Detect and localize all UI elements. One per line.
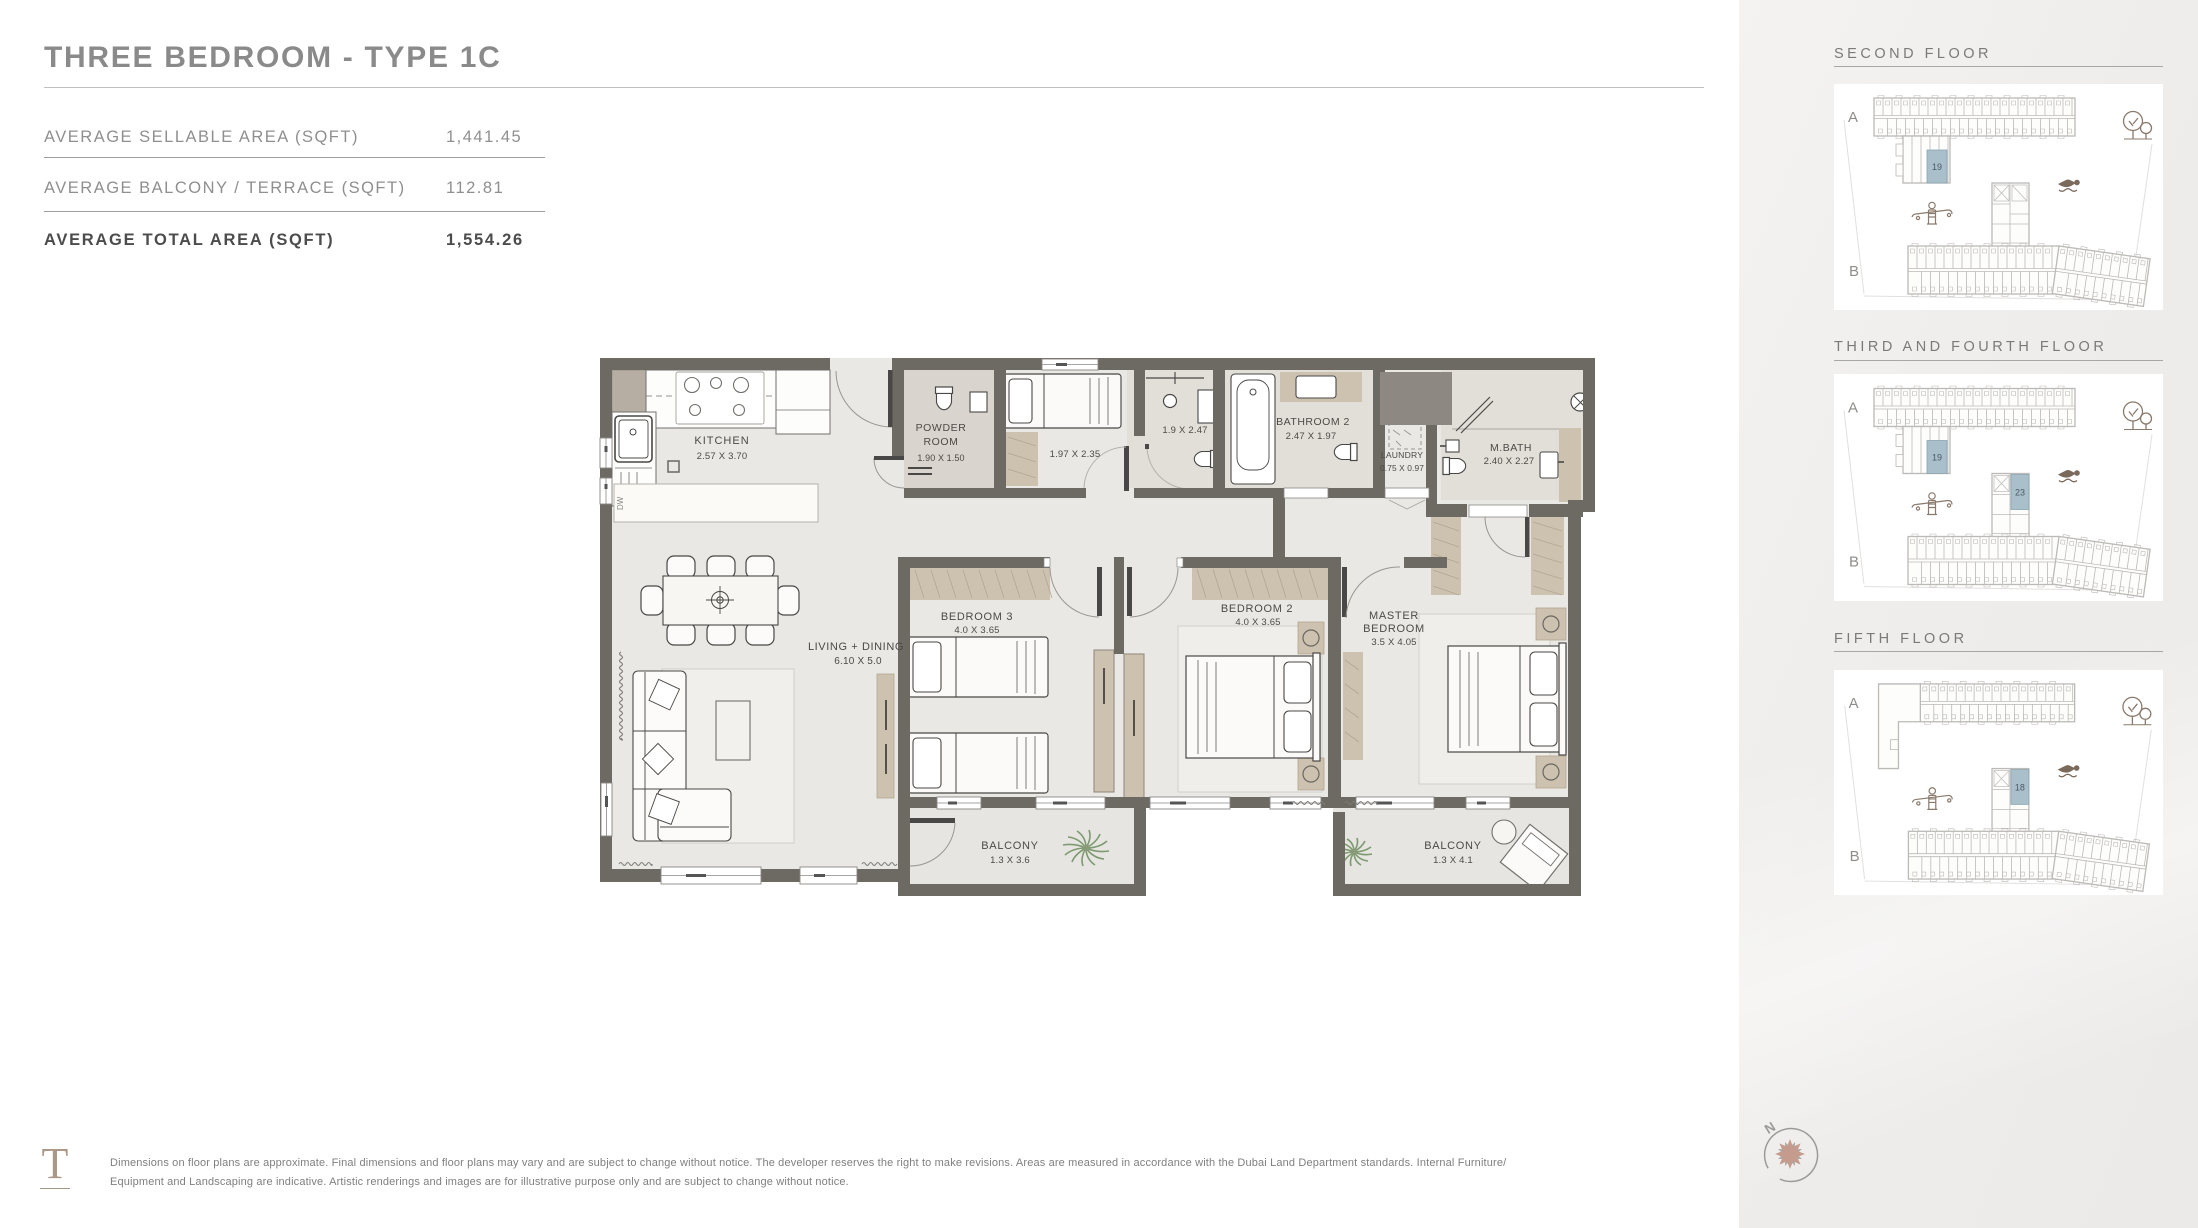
svg-text:B: B <box>1849 263 1859 280</box>
svg-text:1.3 X 3.6: 1.3 X 3.6 <box>990 855 1030 866</box>
svg-text:2.57 X 3.70: 2.57 X 3.70 <box>697 451 748 462</box>
svg-text:M.BATH: M.BATH <box>1490 442 1532 454</box>
svg-text:18: 18 <box>2015 782 2025 792</box>
svg-text:LIVING + DINING: LIVING + DINING <box>808 641 904 653</box>
svg-text:23: 23 <box>2015 488 2025 498</box>
svg-text:KITCHEN: KITCHEN <box>694 435 749 447</box>
svg-text:ROOM: ROOM <box>923 436 958 448</box>
svg-text:1.3 X 4.1: 1.3 X 4.1 <box>1433 855 1473 866</box>
svg-text:BATHROOM 2: BATHROOM 2 <box>1276 416 1350 428</box>
svg-text:B: B <box>1850 848 1860 865</box>
svg-text:POWDER: POWDER <box>916 422 967 434</box>
svg-text:B: B <box>1849 554 1859 571</box>
svg-text:1.90 X 1.50: 1.90 X 1.50 <box>917 453 964 463</box>
svg-text:6.10 X 5.0: 6.10 X 5.0 <box>834 656 882 667</box>
svg-text:BEDROOM: BEDROOM <box>1363 623 1425 635</box>
svg-text:A: A <box>1849 695 1859 712</box>
svg-text:BALCONY: BALCONY <box>981 840 1038 852</box>
svg-text:A: A <box>1848 109 1858 126</box>
svg-text:4.0 X 3.65: 4.0 X 3.65 <box>1235 617 1280 628</box>
svg-text:2.40 X 2.27: 2.40 X 2.27 <box>1484 456 1535 467</box>
svg-text:MASTER: MASTER <box>1369 610 1419 622</box>
svg-text:DW: DW <box>616 496 625 510</box>
svg-text:1.9 X 2.47: 1.9 X 2.47 <box>1162 425 1207 436</box>
svg-text:LAUNDRY: LAUNDRY <box>1381 450 1423 460</box>
svg-text:3.5 X 4.05: 3.5 X 4.05 <box>1371 637 1416 648</box>
svg-text:1.97 X 2.35: 1.97 X 2.35 <box>1050 449 1101 460</box>
svg-text:BEDROOM 2: BEDROOM 2 <box>1221 603 1293 615</box>
svg-text:19: 19 <box>1932 453 1942 463</box>
svg-text:19: 19 <box>1932 162 1942 172</box>
svg-text:4.0 X 3.65: 4.0 X 3.65 <box>954 625 999 636</box>
svg-text:BALCONY: BALCONY <box>1424 840 1481 852</box>
svg-text:A: A <box>1848 400 1858 417</box>
svg-text:0.75 X 0.97: 0.75 X 0.97 <box>1380 463 1424 473</box>
svg-text:N: N <box>1762 1119 1778 1137</box>
svg-text:2.47 X 1.97: 2.47 X 1.97 <box>1286 431 1337 442</box>
svg-text:BEDROOM 3: BEDROOM 3 <box>941 611 1013 623</box>
